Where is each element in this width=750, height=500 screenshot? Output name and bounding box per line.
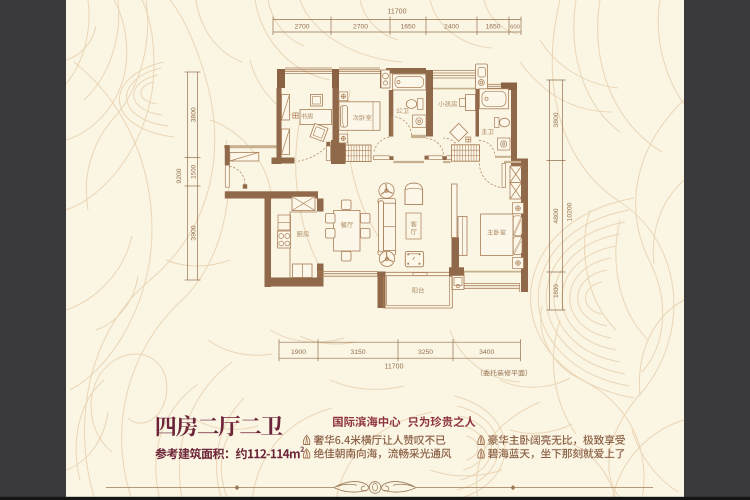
svg-text:1650: 1650: [400, 24, 415, 31]
svg-text:1650: 1650: [485, 24, 500, 31]
svg-text:10200: 10200: [567, 202, 574, 221]
svg-text:4800: 4800: [553, 208, 560, 223]
svg-text:3800: 3800: [553, 112, 560, 127]
svg-text:1600: 1600: [553, 284, 560, 298]
svg-text:3150: 3150: [350, 349, 365, 356]
svg-text:600: 600: [510, 25, 520, 31]
svg-text:11700: 11700: [385, 364, 404, 371]
svg-text:3900: 3900: [191, 225, 198, 240]
svg-text:2700: 2700: [294, 24, 309, 31]
svg-text:3800: 3800: [191, 107, 198, 122]
svg-text:9200: 9200: [176, 168, 183, 183]
svg-text:11700: 11700: [388, 9, 407, 16]
svg-text:2700: 2700: [353, 24, 368, 31]
svg-text:1900: 1900: [291, 349, 306, 356]
svg-text:2400: 2400: [444, 24, 459, 31]
svg-text:1500: 1500: [191, 164, 198, 178]
svg-text:3250: 3250: [418, 349, 433, 356]
svg-text:3400: 3400: [479, 349, 494, 356]
